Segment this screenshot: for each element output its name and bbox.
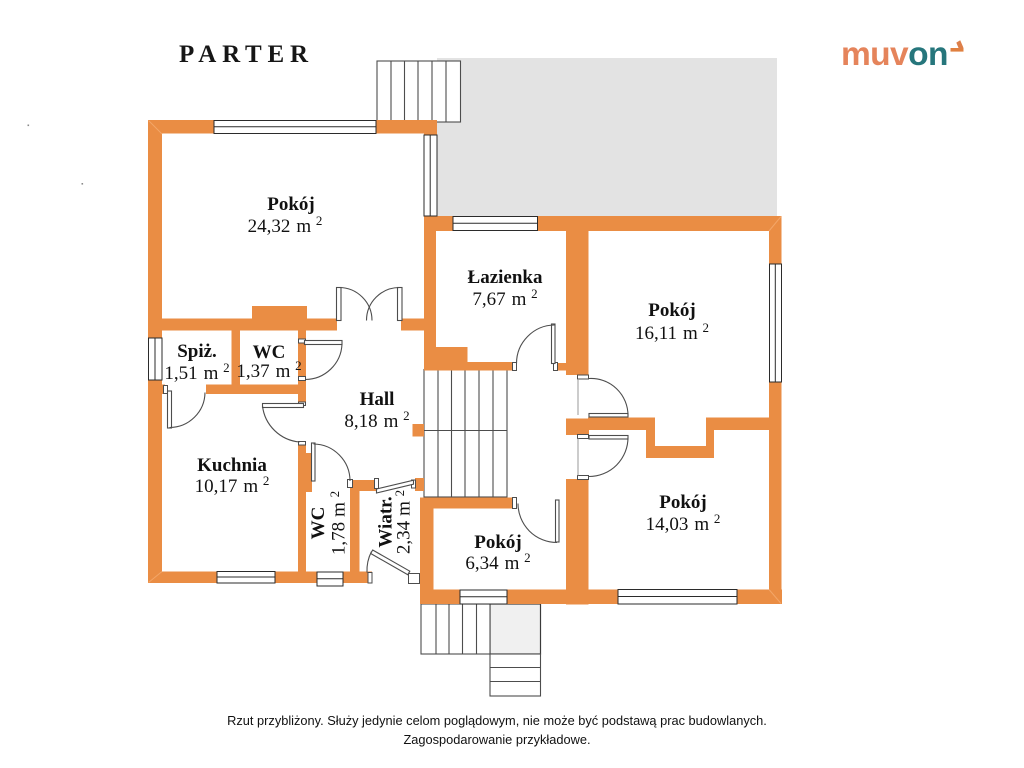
svg-text:Pokój: Pokój <box>267 194 315 215</box>
svg-text:WC: WC <box>253 342 286 363</box>
svg-text:WC: WC <box>308 507 329 540</box>
svg-text:Spiż.: Spiż. <box>177 341 217 362</box>
svg-text:Zagospodarowanie przykładowe.: Zagospodarowanie przykładowe. <box>403 732 590 747</box>
svg-text:1,78m 2: 1,78m 2 <box>327 491 350 555</box>
svg-text:8,18m 2: 8,18m 2 <box>344 408 409 432</box>
svg-text:7,67m 2: 7,67m 2 <box>472 286 537 310</box>
svg-text:muvon: muvon <box>841 36 948 73</box>
svg-text:Łazienka: Łazienka <box>468 267 543 288</box>
svg-text:PARTER: PARTER <box>179 41 314 68</box>
svg-text:10,17m 2: 10,17m 2 <box>195 473 270 497</box>
svg-text:16,11m 2: 16,11m 2 <box>635 320 709 344</box>
svg-text:Kuchnia: Kuchnia <box>197 455 267 476</box>
svg-text:Pokój: Pokój <box>474 532 522 553</box>
svg-text:1,37m 2: 1,37m 2 <box>236 358 301 382</box>
svg-text:Pokój: Pokój <box>659 492 707 513</box>
svg-text:2,34m 2: 2,34m 2 <box>392 490 415 554</box>
svg-text:24,32m 2: 24,32m 2 <box>248 213 323 237</box>
svg-text:Rzut przybliżony. Służy jedyni: Rzut przybliżony. Służy jedynie celom po… <box>227 713 767 728</box>
svg-text:14,03m 2: 14,03m 2 <box>646 511 721 535</box>
svg-text:1,51m 2: 1,51m 2 <box>164 360 229 384</box>
svg-text:6,34m 2: 6,34m 2 <box>465 550 530 574</box>
svg-text:Pokój: Pokój <box>648 300 696 321</box>
svg-text:Hall: Hall <box>360 389 395 410</box>
